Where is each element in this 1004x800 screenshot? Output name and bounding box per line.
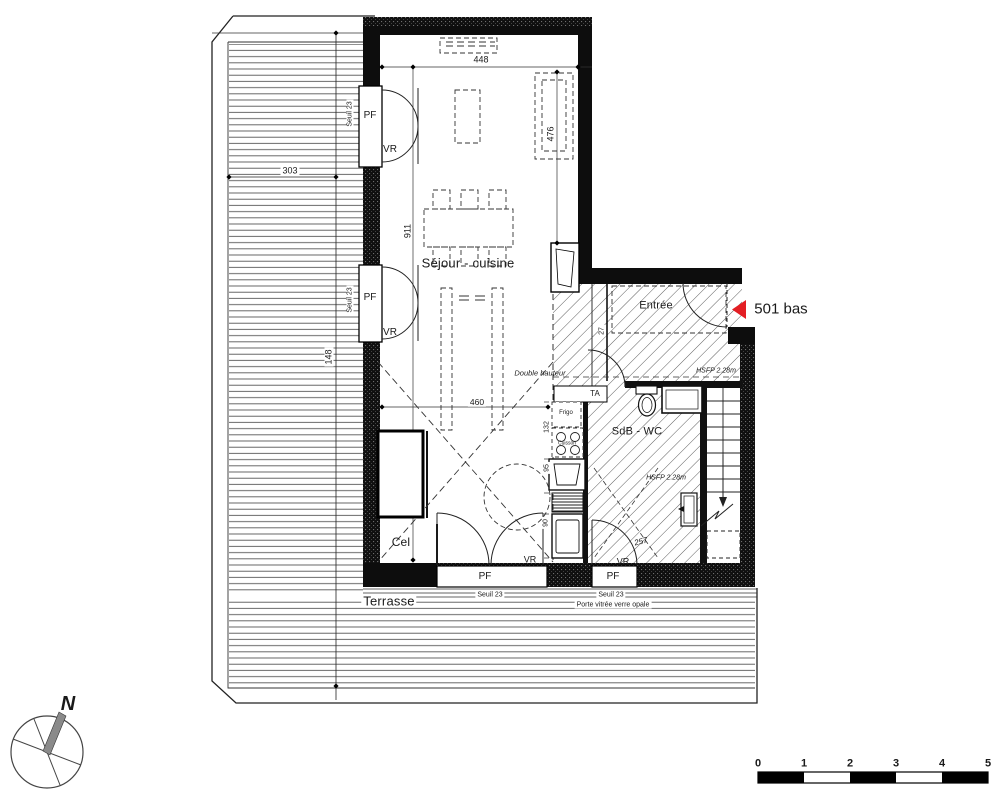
opening-pf-bottom-1: PF — [479, 572, 492, 582]
compass-north-label: N — [61, 694, 75, 714]
dim-27: 27 — [599, 325, 606, 337]
opening-vr-bottom-1: VR — [524, 556, 537, 565]
floor-plan-page: Séjour - cuisine Entrée SdB - WC Cel Ter… — [0, 0, 1004, 800]
opening-pf-bottom-2: PF — [607, 572, 620, 582]
opening-vr-bottom-2: VR — [617, 558, 630, 567]
cel-cupboard — [378, 431, 423, 517]
compass-rose — [11, 712, 83, 788]
annotation-cuisson: Cuisson — [558, 442, 576, 447]
annotation-ta: TA — [590, 390, 600, 398]
annotation-double-hauteur: Double hauteur — [514, 369, 565, 377]
scale-bar — [758, 772, 988, 783]
opening-pf-left-top: PF — [362, 111, 379, 121]
annotation-frigo: Frigo — [559, 410, 573, 416]
dim-148: 148 — [325, 347, 334, 366]
room-label-sejour-cuisine: Séjour - cuisine — [422, 257, 515, 270]
opening-vr-left-top: VR — [383, 145, 397, 155]
dim-95: 95 — [544, 462, 551, 474]
room-label-entree: Entrée — [639, 301, 673, 312]
scale-tick-1: 1 — [801, 759, 807, 770]
opening-pf-left-bottom: PF — [362, 293, 379, 303]
scale-tick-3: 3 — [893, 759, 899, 770]
unit-label: 501 bas — [754, 302, 807, 317]
floor-plan-drawing — [0, 0, 1004, 800]
dim-448: 448 — [471, 56, 490, 65]
north-needle-icon — [43, 712, 66, 755]
dim-460: 460 — [468, 398, 486, 407]
scale-tick-0: 0 — [755, 759, 761, 770]
room-label-terrasse: Terrasse — [361, 595, 416, 608]
seuil-left-top: Seuil 23 — [347, 99, 354, 128]
annotation-hsfp-entree: HSFP 2.28m — [696, 368, 736, 375]
dim-90: 90 — [543, 517, 550, 529]
scale-tick-5: 5 — [985, 759, 991, 770]
scale-tick-4: 4 — [939, 759, 945, 770]
room-label-sdb-wc: SdB - WC — [612, 427, 663, 438]
dim-303: 303 — [280, 167, 299, 176]
seuil-bottom-1: Seuil 23 — [475, 592, 504, 599]
seuil-left-bottom: Seuil 23 — [347, 285, 354, 314]
opening-vr-left-bottom: VR — [383, 328, 397, 338]
dim-132: 132 — [544, 419, 551, 435]
annotation-porte-vitree: Porte vitrée verre opale — [575, 602, 652, 609]
dim-476: 476 — [547, 124, 556, 143]
annotation-hsfp-sdb: HSFP 2.28m — [646, 475, 686, 482]
scale-tick-2: 2 — [847, 759, 853, 770]
seuil-bottom-2: Seuil 23 — [596, 592, 625, 599]
dim-911: 911 — [404, 222, 413, 240]
room-label-cel: Cel — [392, 536, 411, 548]
